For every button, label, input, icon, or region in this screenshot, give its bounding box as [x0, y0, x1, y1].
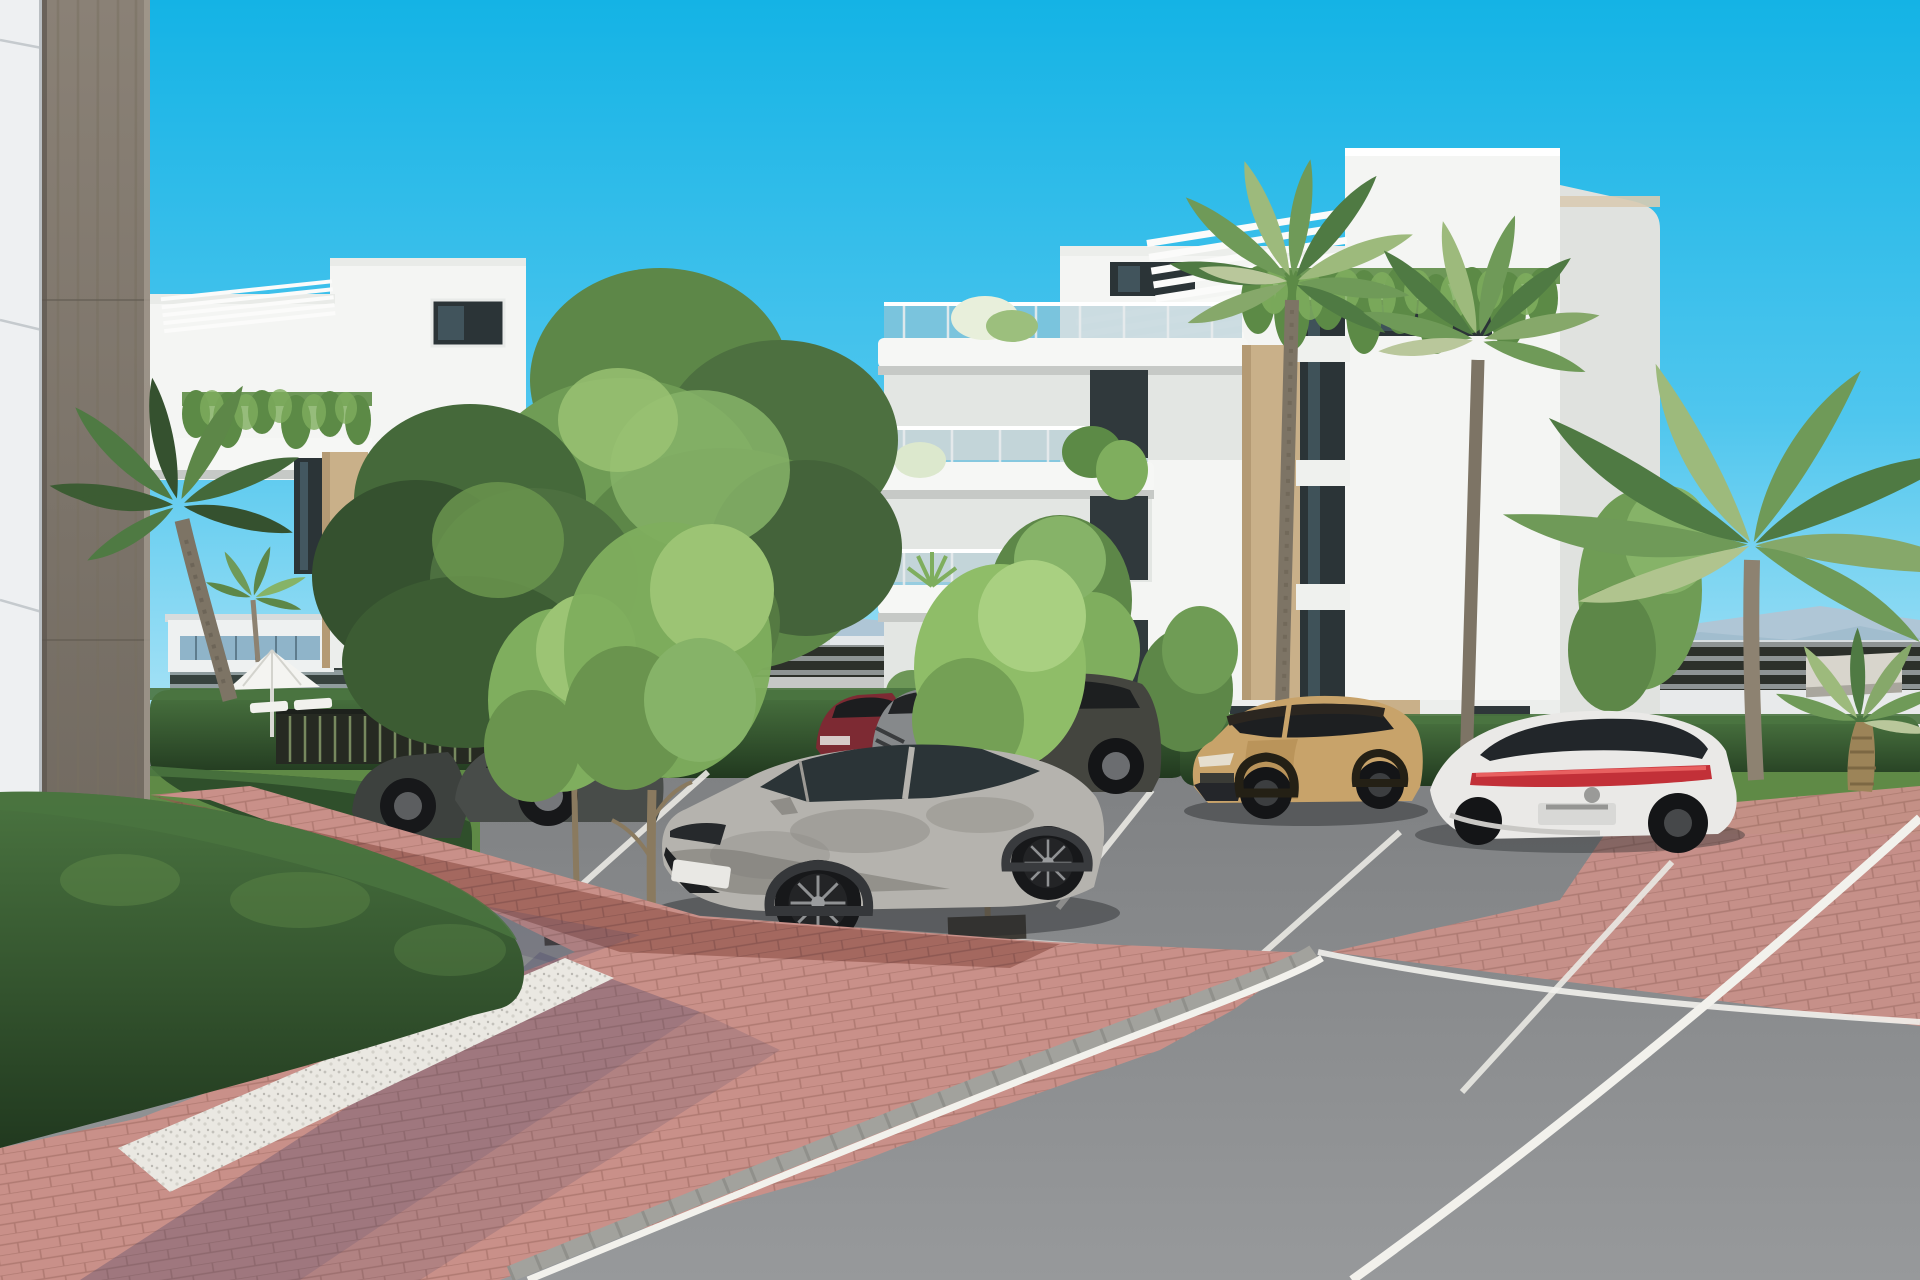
- pool-house: [165, 614, 337, 672]
- render-image: [0, 0, 1920, 1280]
